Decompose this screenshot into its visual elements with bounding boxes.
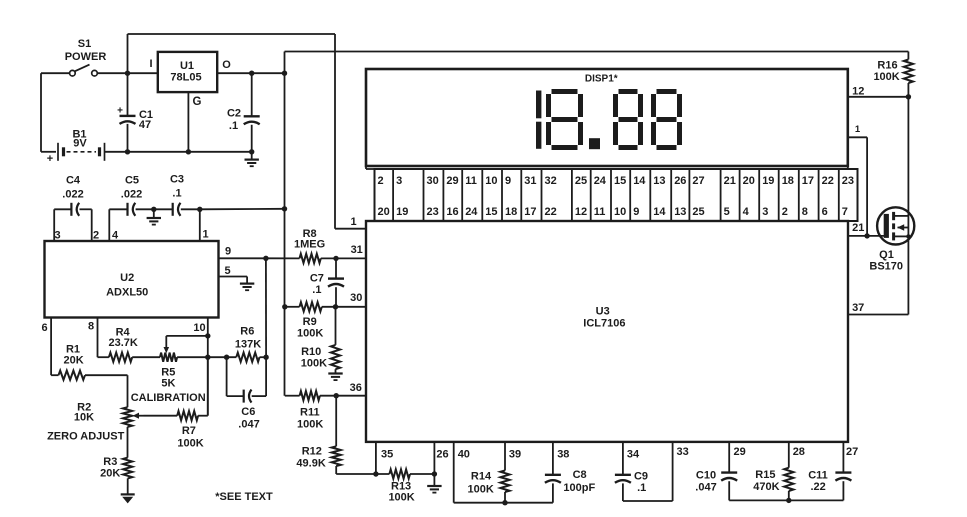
svg-text:26: 26 xyxy=(674,175,686,187)
svg-text:.22: .22 xyxy=(810,481,825,493)
svg-text:10: 10 xyxy=(193,322,205,334)
svg-text:R7: R7 xyxy=(182,425,196,437)
svg-text:20: 20 xyxy=(378,206,390,218)
svg-text:1: 1 xyxy=(855,124,861,135)
svg-text:ADXL50: ADXL50 xyxy=(106,287,148,299)
svg-text:34: 34 xyxy=(627,449,640,461)
svg-text:CALIBRATION: CALIBRATION xyxy=(131,392,206,404)
svg-text:31: 31 xyxy=(524,175,536,187)
svg-text:C7: C7 xyxy=(310,273,324,285)
svg-text:14: 14 xyxy=(633,175,646,187)
svg-text:28: 28 xyxy=(793,446,805,458)
svg-text:R12: R12 xyxy=(302,446,322,458)
svg-text:DISP1*: DISP1* xyxy=(585,74,618,85)
svg-text:ZERO ADJUST: ZERO ADJUST xyxy=(47,431,124,443)
svg-text:6: 6 xyxy=(822,206,828,218)
svg-text:31: 31 xyxy=(351,244,363,256)
svg-text:37: 37 xyxy=(852,302,864,314)
svg-text:18: 18 xyxy=(505,206,517,218)
svg-text:12: 12 xyxy=(575,206,587,218)
svg-text:470K: 470K xyxy=(753,481,779,493)
svg-text:21: 21 xyxy=(724,175,736,187)
svg-text:R3: R3 xyxy=(103,456,117,468)
svg-text:BS170: BS170 xyxy=(869,261,903,273)
svg-text:10K: 10K xyxy=(74,412,94,424)
svg-text:S1: S1 xyxy=(78,38,91,50)
svg-text:C3: C3 xyxy=(170,174,184,186)
svg-text:R11: R11 xyxy=(300,407,320,419)
svg-text:C2: C2 xyxy=(227,108,241,120)
svg-text:*SEE TEXT: *SEE TEXT xyxy=(215,491,273,503)
svg-text:13: 13 xyxy=(674,206,686,218)
svg-text:20: 20 xyxy=(743,175,755,187)
svg-text:R6: R6 xyxy=(240,326,254,338)
svg-text:17: 17 xyxy=(802,175,814,187)
svg-text:R10: R10 xyxy=(301,346,321,358)
svg-text:36: 36 xyxy=(350,382,362,394)
svg-text:2: 2 xyxy=(378,175,384,187)
svg-text:+: + xyxy=(117,106,123,117)
svg-text:9V: 9V xyxy=(73,138,87,150)
svg-text:C4: C4 xyxy=(66,175,81,187)
svg-text:8: 8 xyxy=(88,321,94,333)
svg-text:O: O xyxy=(222,59,231,71)
svg-text:26: 26 xyxy=(436,449,448,461)
svg-text:20K: 20K xyxy=(64,355,84,367)
svg-text:Q1: Q1 xyxy=(879,249,894,261)
svg-text:.022: .022 xyxy=(62,189,83,201)
svg-text:19: 19 xyxy=(762,175,774,187)
svg-text:23.7K: 23.7K xyxy=(109,337,138,349)
svg-text:5K: 5K xyxy=(161,378,175,390)
svg-text:C6: C6 xyxy=(241,406,255,418)
svg-text:100K: 100K xyxy=(297,328,323,340)
svg-text:25: 25 xyxy=(692,206,704,218)
svg-text:24: 24 xyxy=(594,175,607,187)
svg-text:U2: U2 xyxy=(120,272,134,284)
svg-text:U3: U3 xyxy=(596,306,610,318)
svg-text:18: 18 xyxy=(782,175,794,187)
svg-text:5: 5 xyxy=(224,265,230,277)
svg-text:.1: .1 xyxy=(312,284,321,296)
svg-text:17: 17 xyxy=(524,206,536,218)
svg-text:G: G xyxy=(193,96,202,108)
svg-text:15: 15 xyxy=(485,206,497,218)
svg-text:19: 19 xyxy=(396,206,408,218)
svg-text:20K: 20K xyxy=(100,468,120,480)
svg-text:C11: C11 xyxy=(808,470,828,482)
svg-text:24: 24 xyxy=(465,206,478,218)
svg-text:R16: R16 xyxy=(877,60,897,72)
svg-text:1: 1 xyxy=(350,216,356,228)
svg-text:14: 14 xyxy=(653,206,666,218)
svg-text:.1: .1 xyxy=(172,188,181,200)
svg-text:9: 9 xyxy=(225,246,231,258)
svg-text:R14: R14 xyxy=(471,471,492,483)
svg-text:2: 2 xyxy=(93,230,99,242)
svg-text:23: 23 xyxy=(427,206,439,218)
svg-text:POWER: POWER xyxy=(65,51,107,63)
svg-text:29: 29 xyxy=(446,175,458,187)
svg-text:35: 35 xyxy=(381,449,393,461)
svg-text:100K: 100K xyxy=(297,419,323,431)
svg-text:2: 2 xyxy=(782,206,788,218)
svg-text:C9: C9 xyxy=(634,471,648,483)
svg-text:C10: C10 xyxy=(696,470,716,482)
svg-text:6: 6 xyxy=(41,322,47,334)
svg-text:33: 33 xyxy=(677,446,689,458)
svg-text:.022: .022 xyxy=(121,189,142,201)
svg-text:12: 12 xyxy=(852,86,864,98)
svg-text:10: 10 xyxy=(485,175,497,187)
svg-text:16: 16 xyxy=(446,206,458,218)
svg-text:30: 30 xyxy=(427,175,439,187)
svg-text:1: 1 xyxy=(202,229,208,241)
svg-text:100pF: 100pF xyxy=(563,482,595,494)
svg-text:R15: R15 xyxy=(755,469,775,481)
svg-text:3: 3 xyxy=(762,206,768,218)
svg-text:38: 38 xyxy=(557,449,569,461)
svg-text:22: 22 xyxy=(822,175,834,187)
svg-text:.1: .1 xyxy=(229,120,238,132)
svg-text:4: 4 xyxy=(743,206,750,218)
svg-text:3: 3 xyxy=(54,230,60,242)
svg-text:8: 8 xyxy=(802,206,808,218)
svg-text:25: 25 xyxy=(575,175,587,187)
svg-text:U1: U1 xyxy=(180,60,194,72)
svg-text:100K: 100K xyxy=(388,492,414,504)
svg-text:27: 27 xyxy=(692,175,704,187)
svg-text:.047: .047 xyxy=(695,482,716,494)
svg-text:+: + xyxy=(47,153,53,165)
svg-text:100K: 100K xyxy=(301,358,327,370)
svg-text:137K: 137K xyxy=(235,339,261,351)
svg-text:30: 30 xyxy=(350,292,362,304)
svg-text:47: 47 xyxy=(139,119,151,131)
svg-text:I: I xyxy=(149,58,152,70)
svg-text:9: 9 xyxy=(633,206,639,218)
svg-text:100K: 100K xyxy=(177,438,203,450)
svg-text:1MEG: 1MEG xyxy=(294,239,325,251)
svg-text:R9: R9 xyxy=(303,316,317,328)
svg-text:23: 23 xyxy=(842,175,854,187)
svg-text:5: 5 xyxy=(724,206,730,218)
svg-text:27: 27 xyxy=(846,446,858,458)
svg-text:15: 15 xyxy=(614,175,626,187)
svg-text:21: 21 xyxy=(852,222,864,234)
svg-text:11: 11 xyxy=(594,206,606,218)
svg-text:100K: 100K xyxy=(468,484,494,496)
svg-text:32: 32 xyxy=(545,175,557,187)
svg-text:4: 4 xyxy=(112,230,119,242)
svg-text:22: 22 xyxy=(545,206,557,218)
svg-text:39: 39 xyxy=(509,449,521,461)
svg-text:40: 40 xyxy=(458,449,470,461)
svg-text:ICL7106: ICL7106 xyxy=(583,318,625,330)
svg-text:100K: 100K xyxy=(873,71,899,83)
svg-text:49.9K: 49.9K xyxy=(296,458,325,470)
svg-text:C8: C8 xyxy=(573,469,587,481)
svg-text:3: 3 xyxy=(396,175,402,187)
svg-text:.047: .047 xyxy=(238,419,259,431)
svg-text:10: 10 xyxy=(614,206,626,218)
svg-text:78L05: 78L05 xyxy=(170,72,201,84)
svg-text:9: 9 xyxy=(505,175,511,187)
svg-text:11: 11 xyxy=(465,175,477,187)
svg-text:C5: C5 xyxy=(125,175,139,187)
svg-text:29: 29 xyxy=(734,446,746,458)
svg-text:13: 13 xyxy=(653,175,665,187)
svg-text:.1: .1 xyxy=(637,482,646,494)
svg-text:7: 7 xyxy=(842,206,848,218)
